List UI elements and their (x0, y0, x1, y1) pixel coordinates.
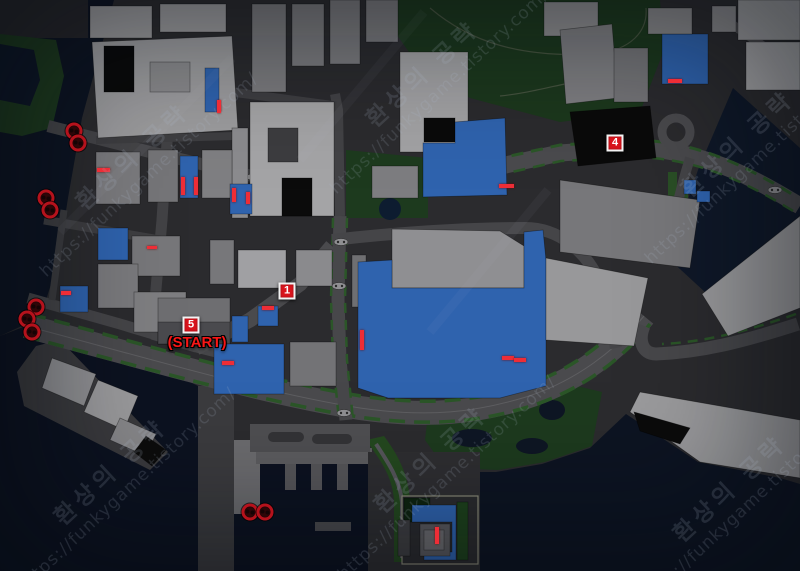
shop-mark (232, 188, 236, 202)
shop-mark (194, 177, 198, 195)
map-marker-4[interactable]: 4 (607, 135, 624, 152)
shop-mark (181, 177, 185, 195)
start-label: (START) (168, 335, 227, 351)
poi-icon[interactable] (257, 504, 274, 521)
shop-mark (246, 192, 250, 204)
map-stage: 145(START)환상의 공략https://funkygame.tistor… (0, 0, 800, 571)
shop-mark (502, 356, 514, 360)
shop-mark (435, 527, 439, 544)
shop-mark (61, 291, 71, 295)
shop-mark (97, 168, 110, 172)
shop-mark (262, 306, 274, 310)
poi-icon[interactable] (70, 135, 87, 152)
map-marker-1[interactable]: 1 (279, 283, 296, 300)
poi-icon[interactable] (42, 202, 59, 219)
shop-mark (147, 246, 157, 249)
map-marker-5[interactable]: 5 (183, 317, 200, 334)
shop-mark (668, 79, 682, 83)
shop-mark (217, 100, 221, 113)
city-map (0, 0, 800, 571)
shop-mark (514, 358, 526, 362)
shop-mark (222, 361, 234, 365)
poi-icon[interactable] (24, 324, 41, 341)
shop-mark (499, 184, 514, 188)
shop-mark (360, 330, 364, 350)
